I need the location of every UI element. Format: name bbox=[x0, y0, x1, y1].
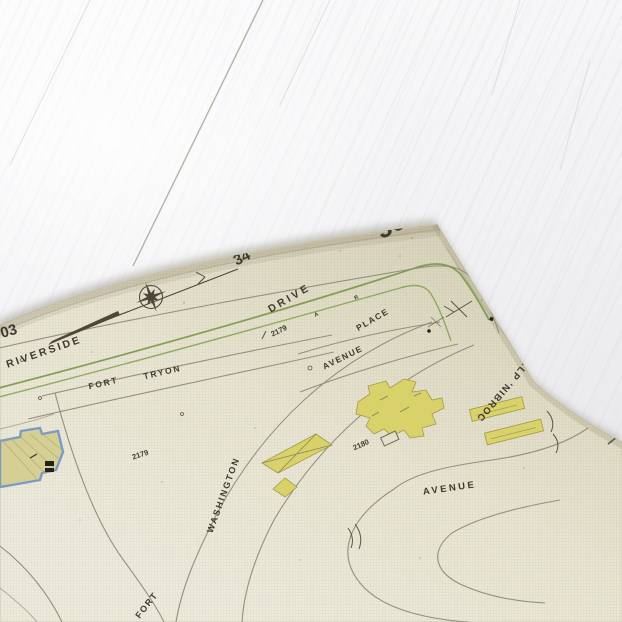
map-content: 36 34 03 RIVERSIDE DRIVE FORT TRYON PLAC… bbox=[0, 200, 622, 622]
floorboard-seam bbox=[133, 0, 263, 266]
paper-weave-texture bbox=[0, 200, 622, 622]
blue-building-dark-detail-2 bbox=[45, 468, 54, 472]
blue-building-dark-detail-1 bbox=[45, 461, 54, 466]
photo-of-map: 36 34 03 RIVERSIDE DRIVE FORT TRYON PLAC… bbox=[0, 0, 622, 622]
wood-grain-lines bbox=[10, 0, 590, 170]
compass-center-dot bbox=[149, 295, 154, 300]
map-scene: 36 34 03 RIVERSIDE DRIVE FORT TRYON PLAC… bbox=[0, 0, 622, 622]
